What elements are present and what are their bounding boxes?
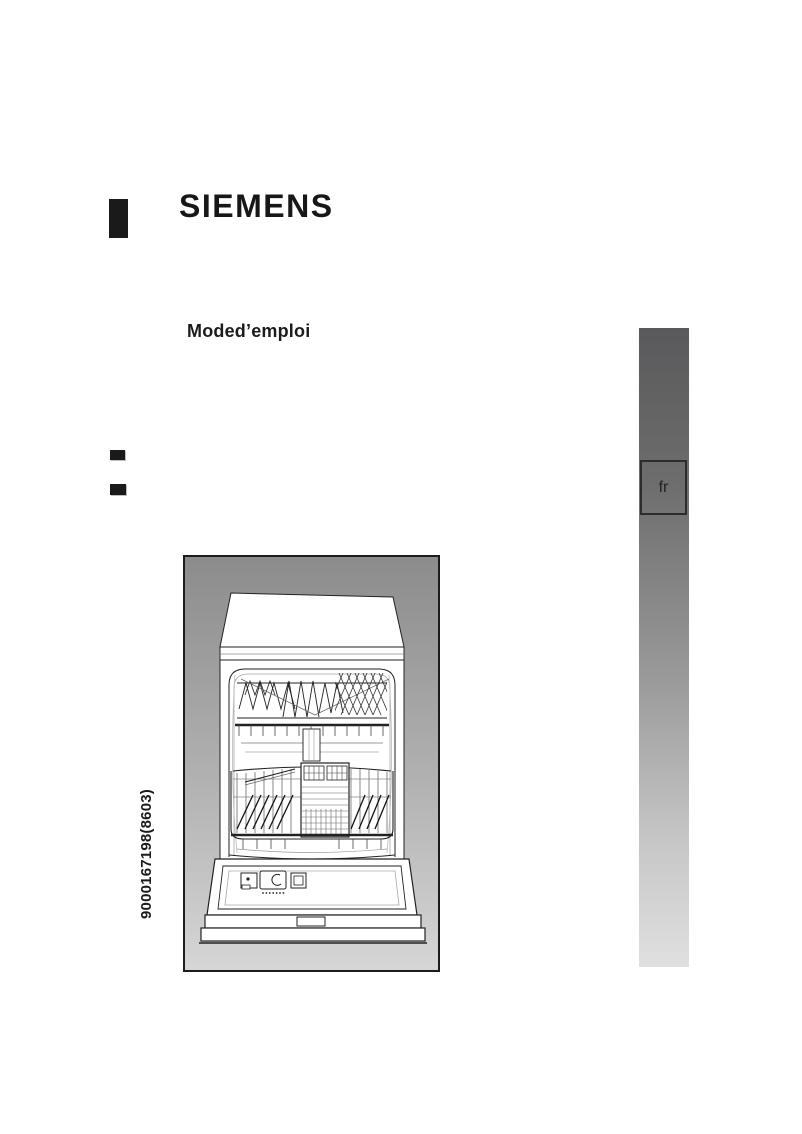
dishwasher-illustration (185, 557, 438, 970)
document-number-vertical: 9000167198(8603) (138, 783, 155, 919)
bullet-square-icon (110, 484, 126, 495)
language-tab-label: fr (659, 479, 669, 497)
brand-wordmark: SIEMENS (179, 190, 334, 222)
language-gradient-sidebar: fr (639, 328, 689, 967)
logo-accent-bar (109, 199, 128, 238)
manual-title: Moded’emploi (187, 321, 310, 342)
language-tab-fr: fr (640, 460, 687, 515)
bullet-square-icon (110, 450, 125, 460)
dishwasher-figure-frame (183, 555, 440, 972)
